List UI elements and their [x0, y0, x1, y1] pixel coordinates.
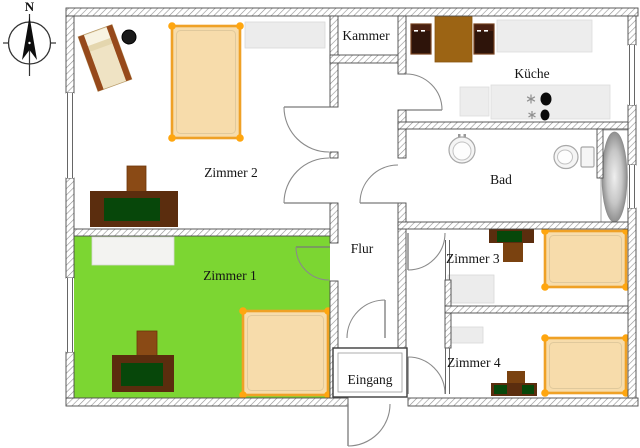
room-label-kammer: Kammer: [342, 28, 390, 43]
floor-plan-canvas: N Zimmer 2 Zimmer 1 Kammer Küche Bad Flu…: [0, 0, 640, 448]
bed-zimmer2: [168, 22, 244, 142]
round-side-table: [122, 30, 136, 44]
bathtub: [601, 130, 628, 225]
window: [628, 45, 636, 105]
window: [66, 278, 74, 352]
burner: [541, 93, 552, 106]
room-label-flur: Flur: [351, 241, 374, 256]
window: [66, 93, 74, 178]
wardrobe-zimmer3: [448, 275, 494, 303]
wardrobe-zimmer4: [449, 327, 483, 343]
room-label-kueche: Küche: [514, 66, 549, 81]
wardrobe-zimmer2: [245, 22, 325, 48]
kitchen-counter: [497, 20, 592, 52]
room-label-zimmer4: Zimmer 4: [447, 355, 501, 370]
room-label-zimmer1: Zimmer 1: [203, 268, 257, 283]
room-label-eingang: Eingang: [348, 372, 393, 387]
toilet: [554, 146, 594, 169]
bed-zimmer1: [239, 307, 332, 399]
north-label: N: [25, 0, 35, 14]
compass-rose: N: [3, 0, 56, 76]
window: [628, 165, 636, 208]
kitchen-counter: [460, 87, 489, 116]
desk-chair: [127, 166, 146, 192]
room-label-zimmer2: Zimmer 2: [204, 165, 258, 180]
kitchen-table: [435, 16, 472, 62]
kitchen-chair: [411, 24, 431, 54]
kitchen-chair: [474, 24, 494, 54]
wardrobe-zimmer1: [92, 237, 174, 265]
floor-plan: N Zimmer 2 Zimmer 1 Kammer Küche Bad Flu…: [0, 0, 640, 448]
desk-chair: [507, 371, 525, 384]
bed-zimmer4: [541, 334, 630, 397]
bed-zimmer3: [541, 227, 630, 291]
room-label-zimmer3: Zimmer 3: [446, 251, 500, 266]
room-label-bad: Bad: [490, 172, 512, 187]
desk-chair: [503, 243, 523, 262]
burner: [541, 110, 550, 121]
desk-chair: [137, 331, 157, 356]
door-entrance: [348, 404, 390, 446]
